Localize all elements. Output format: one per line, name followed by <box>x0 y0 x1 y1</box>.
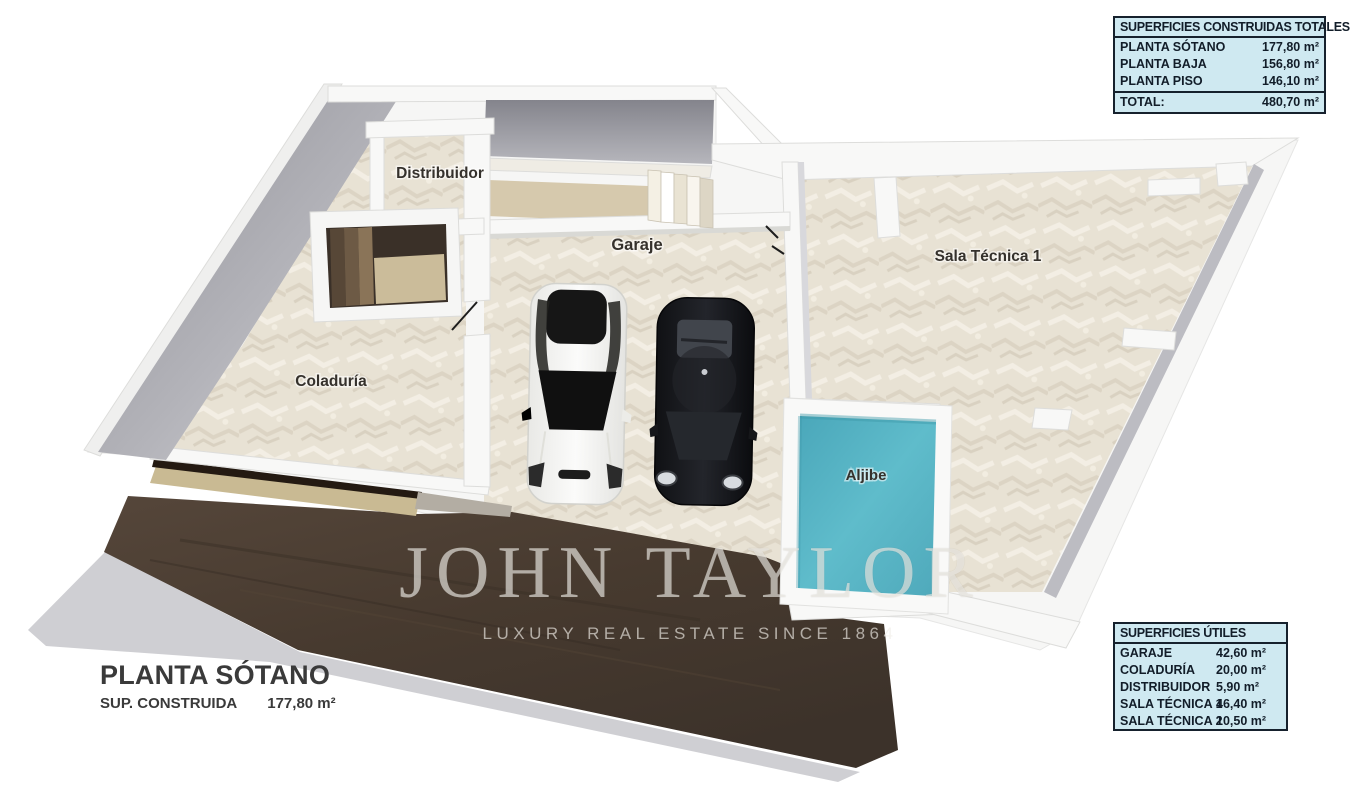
row-label: DISTRIBUIDOR <box>1120 680 1216 694</box>
wall-coladuria-garage-b <box>464 334 490 487</box>
row-label: SALA TÉCNICA 2 <box>1120 714 1216 728</box>
row-value: 46,40 m² <box>1216 697 1266 711</box>
aljibe-tank <box>780 398 952 614</box>
wall-stub-4 <box>1216 162 1248 186</box>
row-label: SALA TÉCNICA 1 <box>1120 697 1216 711</box>
total-label: TOTAL: <box>1120 95 1165 109</box>
floorplan-page: { "watermark": { "brand": "JOHN TAYLOR",… <box>0 0 1370 793</box>
table-row: PLANTA BAJA 156,80 m² <box>1115 55 1324 72</box>
table-superficies-construidas: SUPERFICIES CONSTRUIDAS TOTALES PLANTA S… <box>1113 16 1326 114</box>
table-total-row: TOTAL: 480,70 m² <box>1115 91 1324 112</box>
label-distribuidor: Distribuidor <box>396 165 484 182</box>
table-row: GARAJE 42,60 m² <box>1115 644 1286 661</box>
label-coladuria: Coladuría <box>295 373 367 390</box>
row-value: 10,50 m² <box>1216 714 1266 728</box>
table-row: DISTRIBUIDOR 5,90 m² <box>1115 678 1286 695</box>
wall-top-left <box>328 86 716 102</box>
total-value: 480,70 m² <box>1262 95 1319 109</box>
entry-corridor <box>486 180 648 222</box>
row-value: 156,80 m² <box>1262 57 1319 71</box>
table-row: PLANTA SÓTANO 177,80 m² <box>1115 38 1324 55</box>
row-label: GARAJE <box>1120 646 1216 660</box>
title-block: PLANTA SÓTANO SUP. CONSTRUIDA 177,80 m² <box>100 660 336 712</box>
row-label: COLADURÍA <box>1120 663 1216 677</box>
wall-stub-1 <box>874 177 900 238</box>
car-black-headlight-right <box>722 475 742 489</box>
car-white-grille <box>558 470 590 480</box>
table-superficies-utiles: SUPERFICIES ÚTILES GARAJE 42,60 m² COLAD… <box>1113 622 1288 731</box>
label-aljibe: Aljibe <box>846 467 887 484</box>
row-label: PLANTA BAJA <box>1120 57 1207 71</box>
built-surface-value: 177,80 m² <box>267 695 335 712</box>
stairwell <box>310 208 462 322</box>
row-value: 42,60 m² <box>1216 646 1266 660</box>
row-value: 146,10 m² <box>1262 74 1319 88</box>
table-row: SALA TÉCNICA 1 46,40 m² <box>1115 695 1286 712</box>
wall-coladuria-garage-a <box>464 126 490 302</box>
row-value: 5,90 m² <box>1216 680 1259 694</box>
table-built-header: SUPERFICIES CONSTRUIDAS TOTALES <box>1115 18 1324 38</box>
row-value: 20,00 m² <box>1216 663 1266 677</box>
table-useful-header: SUPERFICIES ÚTILES <box>1115 624 1286 644</box>
wall-aljibe-top-b <box>1032 408 1072 430</box>
row-value: 177,80 m² <box>1262 40 1319 54</box>
stairwell-landing <box>374 254 446 304</box>
label-sala-tecnica-1: Sala Técnica 1 <box>935 248 1042 265</box>
car-white-rear-glass <box>546 289 607 344</box>
wall-stub-2 <box>1148 178 1200 196</box>
car-white-windshield <box>537 370 616 431</box>
car-white <box>520 283 635 505</box>
ramp <box>484 100 714 164</box>
row-label: PLANTA PISO <box>1120 74 1203 88</box>
aljibe-water <box>798 416 936 596</box>
wall-distribuidor-top <box>366 118 494 138</box>
table-row: SALA TÉCNICA 2 10,50 m² <box>1115 712 1286 729</box>
row-label: PLANTA SÓTANO <box>1120 40 1225 54</box>
built-surface-label: SUP. CONSTRUIDA <box>100 695 237 712</box>
car-black <box>648 297 760 506</box>
label-garaje: Garaje <box>611 236 662 254</box>
wall-stub-3 <box>1122 328 1176 350</box>
entry-steps <box>648 170 713 228</box>
floor-title: PLANTA SÓTANO <box>100 660 336 691</box>
table-row: COLADURÍA 20,00 m² <box>1115 661 1286 678</box>
car-black-headlight-left <box>657 471 677 485</box>
table-row: PLANTA PISO 146,10 m² <box>1115 72 1324 89</box>
